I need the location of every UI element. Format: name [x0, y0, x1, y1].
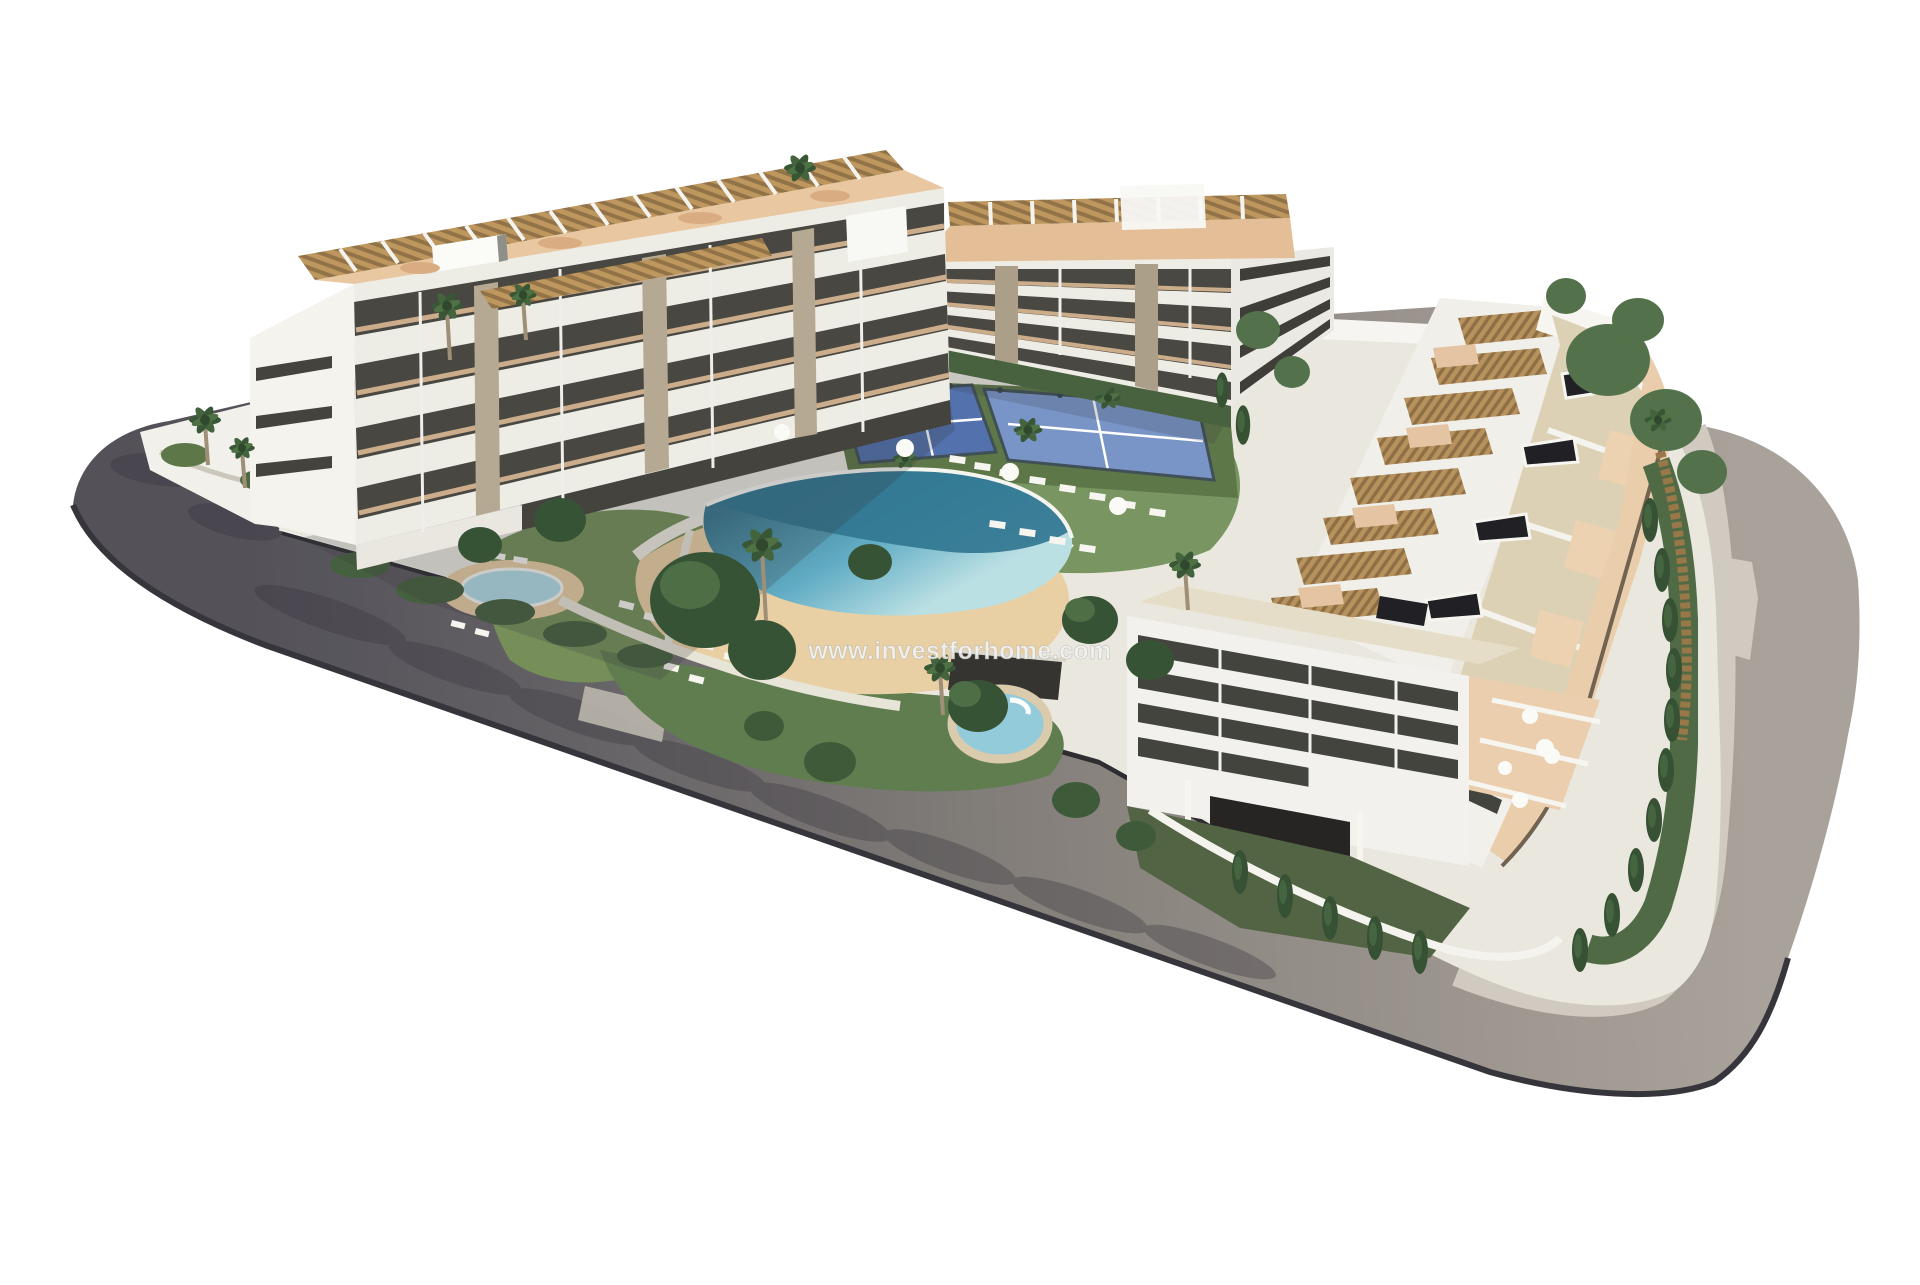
svg-text:www.investforhome.com: www.investforhome.com	[807, 637, 1111, 665]
